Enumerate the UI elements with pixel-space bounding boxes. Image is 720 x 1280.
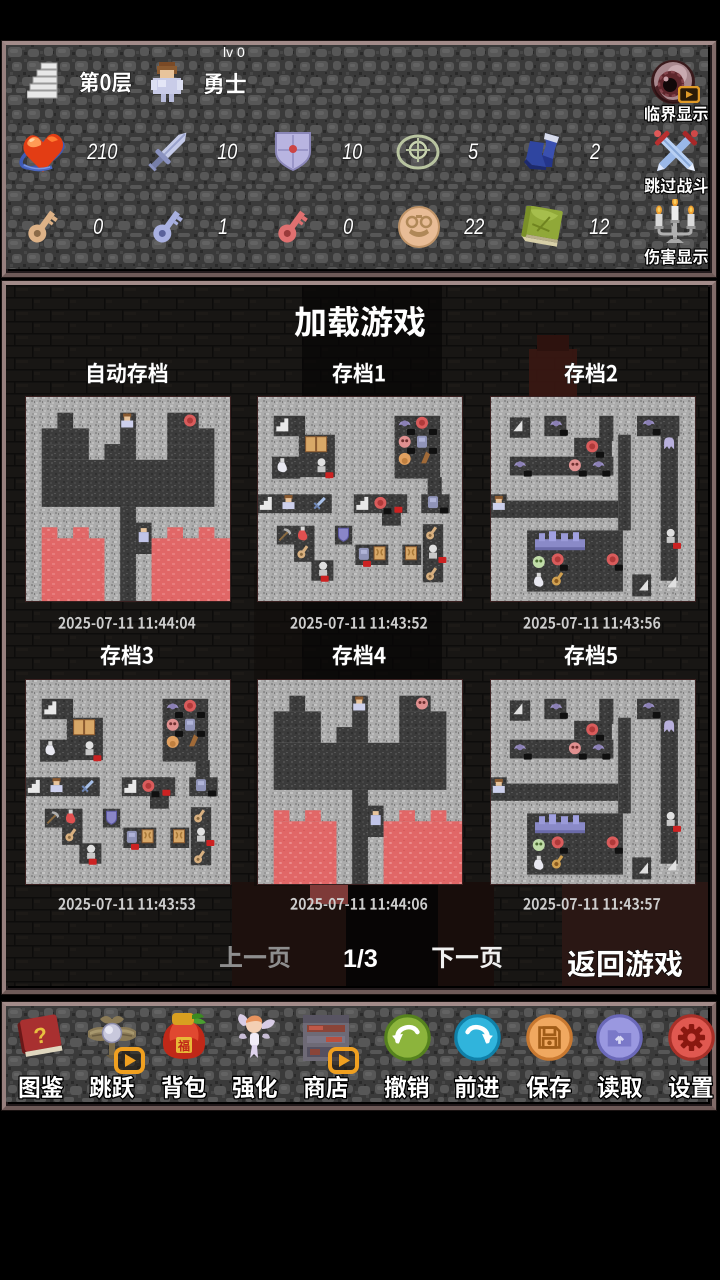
svg-text:福: 福 [177, 1038, 190, 1053]
